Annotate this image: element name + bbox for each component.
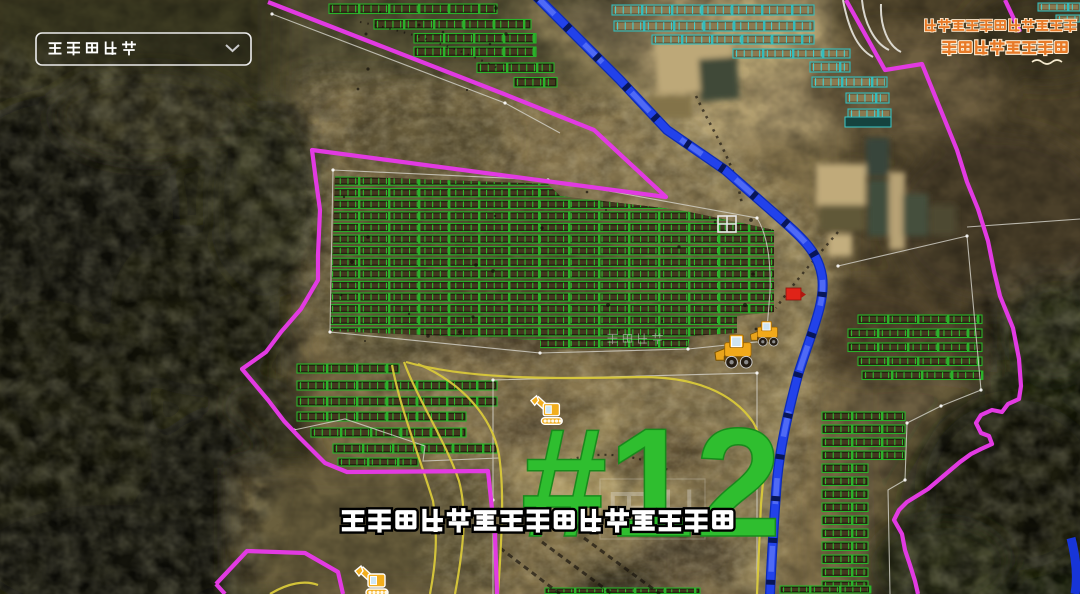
svg-text:#12: #12 — [521, 396, 783, 569]
